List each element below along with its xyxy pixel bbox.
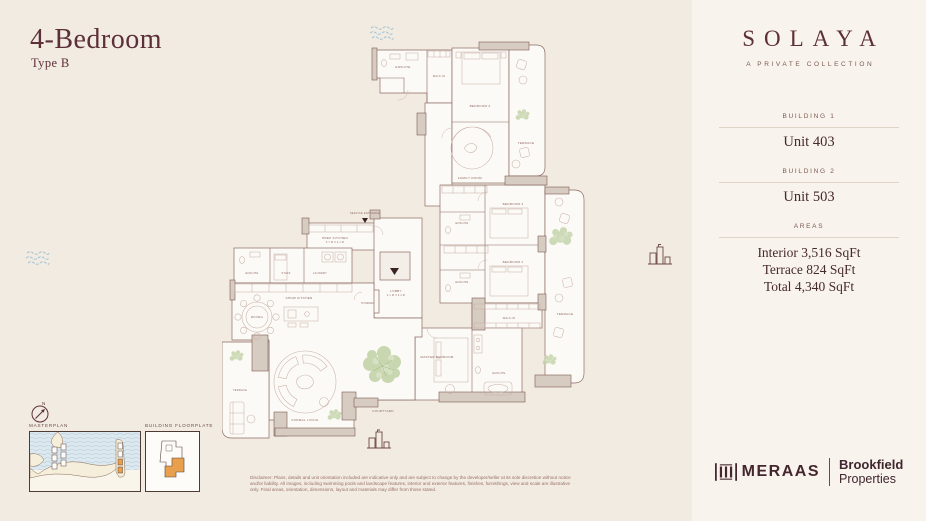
divider bbox=[719, 237, 899, 238]
svg-text:BEDROOM 2: BEDROOM 2 bbox=[503, 260, 524, 264]
divider bbox=[719, 182, 899, 183]
svg-text:MASTER BEDROOM: MASTER BEDROOM bbox=[420, 355, 453, 359]
areas-label: AREAS bbox=[692, 223, 926, 230]
svg-text:PREP KITCHEN: PREP KITCHEN bbox=[322, 236, 348, 240]
waves-icon-left bbox=[26, 250, 50, 266]
svg-text:TERRACE: TERRACE bbox=[518, 141, 535, 145]
building-1-unit: Unit 403 bbox=[692, 134, 926, 151]
floorplate-label: BUILDING FLOORPLATE bbox=[145, 423, 213, 428]
svg-text:4.1 M X 3.4 M: 4.1 M X 3.4 M bbox=[387, 294, 405, 297]
svg-text:LOBBY: LOBBY bbox=[390, 289, 402, 293]
svg-text:COURTYARD: COURTYARD bbox=[372, 409, 394, 413]
page-subtitle: Type B bbox=[31, 56, 70, 71]
info-sidebar: SOLAYA A PRIVATE COLLECTION BUILDING 1 U… bbox=[692, 0, 926, 521]
page-title: 4-Bedroom bbox=[30, 24, 162, 56]
svg-text:BEDROOM 4: BEDROOM 4 bbox=[470, 104, 491, 108]
svg-text:ENSUITE: ENSUITE bbox=[246, 271, 259, 275]
developer-logos: MERAAS Brookfield Properties bbox=[692, 458, 926, 486]
area-terrace: Terrace 824 SqFt bbox=[692, 261, 926, 278]
compass-icon: N bbox=[30, 400, 52, 424]
svg-text:TERRACE: TERRACE bbox=[557, 312, 574, 316]
svg-text:3.7 M X 3.1 M: 3.7 M X 3.1 M bbox=[326, 241, 344, 244]
svg-text:TERRACE: TERRACE bbox=[233, 388, 247, 392]
svg-text:WALK-IN: WALK-IN bbox=[503, 316, 515, 320]
svg-text:WALK-IN: WALK-IN bbox=[433, 74, 445, 78]
svg-text:FORMAL LIVING: FORMAL LIVING bbox=[291, 418, 318, 422]
svg-text:SERVICE ENTRANCE: SERVICE ENTRANCE bbox=[350, 211, 380, 215]
meraas-icon bbox=[715, 462, 737, 482]
building-2-label: BUILDING 2 bbox=[692, 168, 926, 175]
masterplan-label: MASTERPLAN bbox=[29, 423, 68, 428]
svg-text:N: N bbox=[42, 401, 45, 406]
svg-text:LAUNDRY: LAUNDRY bbox=[313, 271, 327, 275]
svg-text:FAMILY ROOM: FAMILY ROOM bbox=[458, 176, 482, 180]
city-skyline-icon-bottom bbox=[366, 429, 392, 451]
brand-logo: SOLAYA bbox=[692, 26, 926, 52]
floor-plan: ENSUITE WALK-IN BEDROOM 4 TERRACE FAMILY… bbox=[222, 30, 662, 470]
divider bbox=[719, 127, 899, 128]
svg-text:BEDROOM 3: BEDROOM 3 bbox=[503, 202, 524, 206]
svg-text:POWDER: POWDER bbox=[361, 301, 374, 305]
area-interior: Interior 3,516 SqFt bbox=[692, 244, 926, 261]
building-1-label: BUILDING 1 bbox=[692, 113, 926, 120]
room-outlines bbox=[222, 45, 584, 438]
svg-text:DINING: DINING bbox=[251, 315, 264, 319]
svg-text:SHOW KITCHEN: SHOW KITCHEN bbox=[285, 296, 312, 300]
logo-divider bbox=[829, 458, 830, 486]
svg-text:STAFF: STAFF bbox=[281, 271, 290, 275]
meraas-logo: MERAAS bbox=[715, 462, 820, 482]
masterplan-map bbox=[29, 431, 141, 492]
area-total: Total 4,340 SqFt bbox=[692, 278, 926, 295]
svg-text:ENSUITE: ENSUITE bbox=[456, 280, 469, 284]
floorplate-map bbox=[145, 431, 200, 492]
city-skyline-icon-right bbox=[646, 243, 674, 267]
svg-text:ENSUITE: ENSUITE bbox=[456, 221, 469, 225]
svg-text:ENSUITE: ENSUITE bbox=[493, 371, 506, 375]
disclaimer-text: Disclaimer: Plans, details and unit orie… bbox=[250, 475, 682, 493]
svg-text:ENSUITE: ENSUITE bbox=[395, 65, 410, 69]
building-2-unit: Unit 503 bbox=[692, 189, 926, 206]
brookfield-logo: Brookfield Properties bbox=[839, 458, 903, 486]
brand-tagline: A PRIVATE COLLECTION bbox=[692, 61, 926, 68]
brochure-page: 4-Bedroom Type B bbox=[0, 0, 926, 521]
meraas-wordmark: MERAAS bbox=[742, 463, 820, 481]
